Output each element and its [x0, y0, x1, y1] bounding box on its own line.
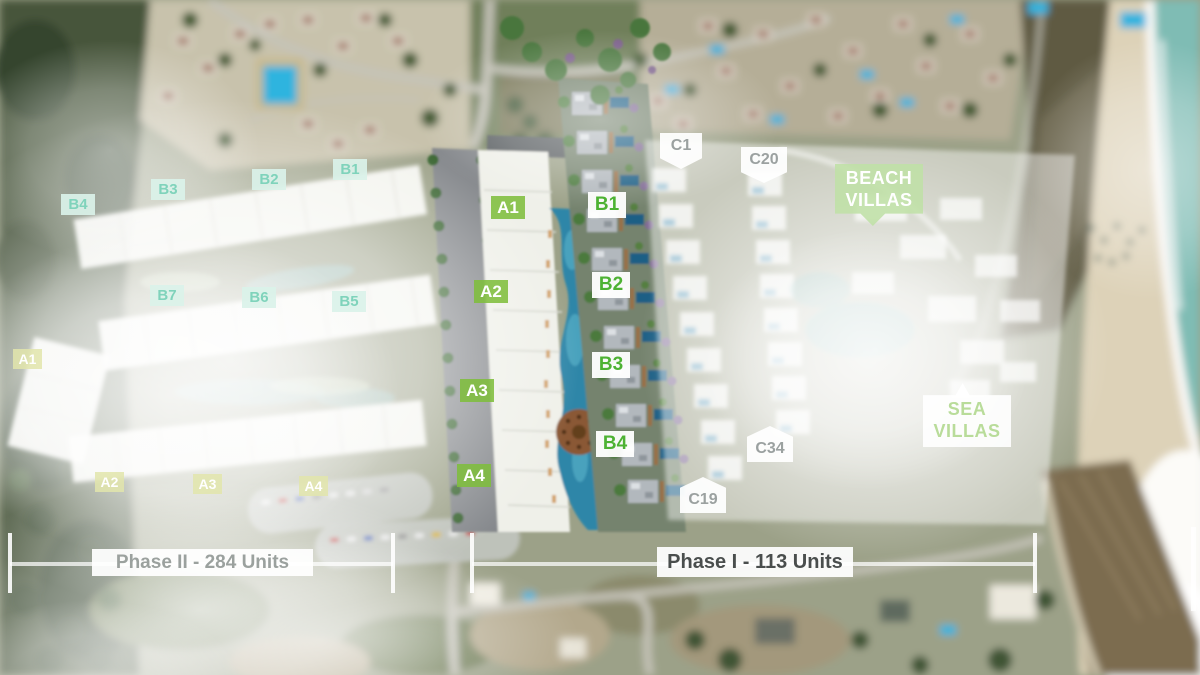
block-label-phase2-b7[interactable]: B7 — [150, 285, 184, 306]
phase2-bracket-tick-right — [391, 533, 395, 593]
block-label-phase2-a4[interactable]: A4 — [299, 476, 328, 496]
block-label-phase2-b4[interactable]: B4 — [61, 194, 95, 215]
block-label-phase1-b3[interactable]: B3 — [592, 352, 630, 378]
block-label-phase1-a3[interactable]: A3 — [460, 379, 494, 402]
block-label-phase2-b6[interactable]: B6 — [242, 287, 276, 308]
block-label-phase1-a1[interactable]: A1 — [491, 196, 525, 219]
block-label-phase2-a2[interactable]: A2 — [95, 472, 124, 492]
phase1-bracket-label: Phase I - 113 Units — [657, 547, 853, 577]
block-label-phase2-a1[interactable]: A1 — [13, 349, 42, 369]
block-label-phase1-a2[interactable]: A2 — [474, 280, 508, 303]
block-label-phase2-b1[interactable]: B1 — [333, 159, 367, 180]
phase2-bracket-label: Phase II - 284 Units — [92, 549, 313, 576]
sea-villas-line1: SEA — [948, 399, 987, 420]
sea-villas-line2: VILLAS — [933, 421, 1000, 442]
phase1-bracket-tick-right — [1033, 533, 1037, 593]
beach-villas-line2: VILLAS — [845, 190, 912, 211]
edge-bracket-tick — [1191, 527, 1196, 611]
block-label-phase1-b4[interactable]: B4 — [596, 431, 634, 457]
block-label-phase1-b1[interactable]: B1 — [588, 192, 626, 218]
block-label-phase2-b5[interactable]: B5 — [332, 291, 366, 312]
block-label-phase2-b2[interactable]: B2 — [252, 169, 286, 190]
block-label-phase1-a4[interactable]: A4 — [457, 464, 491, 487]
beach-villas-line1: BEACH — [846, 168, 913, 189]
site-plan-map: B4 B3 B2 B1 B7 B6 B5 A1 A2 A3 A4 A1 A2 A… — [0, 0, 1200, 675]
block-label-phase1-b2[interactable]: B2 — [592, 272, 630, 298]
block-label-phase2-b3[interactable]: B3 — [151, 179, 185, 200]
block-label-phase2-a3[interactable]: A3 — [193, 474, 222, 494]
